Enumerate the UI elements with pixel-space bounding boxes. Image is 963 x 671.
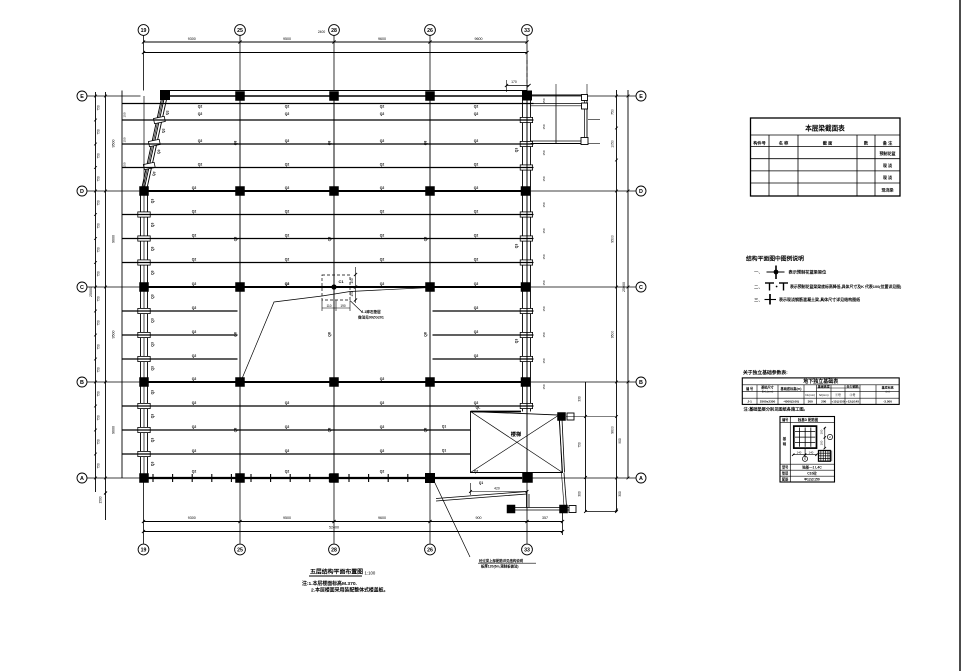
svg-text:Q2: Q2 — [474, 104, 479, 108]
svg-text:Q8: Q8 — [424, 428, 428, 433]
svg-text:②号: ②号 — [850, 392, 856, 397]
svg-text:一、: 一、 — [754, 270, 763, 275]
svg-text:150: 150 — [542, 254, 546, 259]
svg-text:预制花篮: 预制花篮 — [880, 150, 896, 156]
svg-text:Q2: Q2 — [380, 449, 385, 453]
svg-text:33: 33 — [524, 547, 530, 553]
svg-text:9600: 9600 — [475, 37, 483, 41]
svg-text:Q3: Q3 — [515, 244, 519, 249]
svg-text:Q3: Q3 — [151, 342, 155, 347]
svg-text:100: 100 — [820, 429, 824, 434]
svg-text:750: 750 — [578, 442, 582, 448]
svg-text:Q2: Q2 — [192, 401, 197, 405]
svg-text:140: 140 — [797, 451, 802, 455]
svg-text:19: 19 — [141, 547, 147, 553]
svg-text:Q8: Q8 — [424, 332, 428, 337]
svg-text:编号: 编号 — [782, 417, 789, 422]
svg-text:Q2: Q2 — [285, 470, 290, 474]
svg-text:Q3: Q3 — [151, 390, 155, 395]
svg-text:1500: 1500 — [99, 496, 103, 503]
svg-text:9600: 9600 — [112, 426, 116, 434]
svg-text:Q8: Q8 — [424, 237, 428, 242]
svg-text:750: 750 — [97, 296, 101, 302]
svg-text:Q2: Q2 — [285, 234, 290, 238]
svg-text:750: 750 — [97, 415, 101, 421]
svg-text:Q2: Q2 — [474, 234, 479, 238]
svg-text:关于独立基础参数表:: 关于独立基础参数表: — [743, 369, 788, 376]
svg-text:Q2: Q2 — [285, 112, 290, 116]
svg-text:①号: ①号 — [835, 392, 841, 397]
svg-text:截 面: 截 面 — [823, 140, 833, 147]
svg-text:Q2: Q2 — [285, 449, 290, 453]
svg-text:表示预制花篮梁梁底标高降低,具体尺寸及K 代表100(位置详: 表示预制花篮梁梁底标高降低,具体尺寸及K 代表100(位置详见图) — [789, 284, 902, 289]
svg-text:J-1碎石垫层: J-1碎石垫层 — [361, 309, 381, 314]
svg-text:150: 150 — [542, 384, 546, 389]
svg-text:750: 750 — [97, 271, 101, 277]
svg-text:Q8: Q8 — [328, 141, 332, 146]
svg-text:750: 750 — [97, 129, 101, 135]
svg-text:Q2: Q2 — [380, 282, 385, 286]
svg-text:+12@150: +12@150 — [831, 400, 844, 404]
svg-text:C10砼: C10砼 — [807, 471, 817, 476]
svg-text:750: 750 — [97, 391, 101, 397]
svg-text:D: D — [80, 189, 84, 195]
svg-text:150: 150 — [542, 124, 546, 129]
svg-text:9500: 9500 — [112, 331, 116, 339]
svg-text:357: 357 — [542, 516, 548, 520]
svg-text:9500: 9500 — [112, 140, 116, 148]
svg-text:配筋: 配筋 — [782, 477, 789, 482]
svg-text:28: 28 — [331, 28, 337, 34]
svg-text:Q2: Q2 — [198, 139, 203, 143]
svg-text:Q2: Q2 — [192, 234, 197, 238]
svg-text:Q2: Q2 — [474, 306, 479, 310]
svg-text:170: 170 — [511, 80, 517, 84]
svg-text:9500: 9500 — [611, 331, 615, 339]
svg-text:Q2: Q2 — [380, 210, 385, 214]
svg-text:330: 330 — [578, 396, 582, 402]
svg-text:300: 300 — [618, 491, 622, 497]
svg-text:750: 750 — [97, 344, 101, 350]
svg-text:25000: 25000 — [89, 287, 93, 297]
svg-text:基础高度: 基础高度 — [817, 384, 831, 389]
svg-text:900: 900 — [618, 438, 622, 444]
svg-text:750: 750 — [97, 105, 101, 111]
svg-text:9500: 9500 — [283, 37, 291, 41]
svg-text:Q2: Q2 — [474, 186, 479, 190]
svg-text:Q2: Q2 — [285, 425, 290, 429]
svg-text:Q2: Q2 — [380, 104, 385, 108]
svg-text:Q2: Q2 — [380, 139, 385, 143]
svg-text:Q2: Q2 — [192, 258, 197, 262]
svg-text:Q2: Q2 — [192, 377, 197, 381]
svg-text:Q3: Q3 — [157, 149, 162, 154]
svg-text:1050: 1050 — [611, 140, 615, 148]
svg-text:构件号: 构件号 — [753, 140, 766, 147]
svg-text:表示现浇钢筋混凝土梁,具体尺寸详见结构图纸: 表示现浇钢筋混凝土梁,具体尺寸详见结构图纸 — [778, 296, 860, 302]
svg-text:Q2: Q2 — [198, 163, 203, 167]
svg-text:150: 150 — [542, 228, 546, 233]
svg-text:1:100: 1:100 — [365, 571, 376, 576]
svg-text:Q2: Q2 — [198, 104, 203, 108]
svg-text:-4500(3.00): -4500(3.00) — [783, 400, 799, 404]
svg-text:楼梯: 楼梯 — [511, 430, 522, 438]
svg-text:Q2: Q2 — [474, 330, 479, 334]
svg-text:Q3: Q3 — [151, 438, 155, 443]
svg-text:Q2: Q2 — [285, 258, 290, 262]
svg-text:19: 19 — [141, 28, 147, 34]
svg-text:750: 750 — [97, 367, 101, 373]
svg-text:Q3: Q3 — [151, 462, 155, 467]
svg-text:25: 25 — [237, 547, 243, 553]
svg-text:表示预制花篮梁梁位: 表示预制花篮梁梁位 — [789, 269, 828, 276]
svg-text:垫层: 垫层 — [782, 471, 789, 476]
svg-text:Q2: Q2 — [474, 354, 479, 358]
svg-text:B: B — [80, 380, 84, 386]
svg-text:900: 900 — [476, 516, 482, 520]
svg-text:Q2: Q2 — [285, 139, 290, 143]
svg-text:9600: 9600 — [378, 516, 386, 520]
svg-text:Q2: Q2 — [285, 163, 290, 167]
svg-text:Q2: Q2 — [192, 210, 197, 214]
svg-text:Φ12@150: Φ12@150 — [804, 478, 820, 482]
svg-text:140: 140 — [809, 451, 814, 455]
svg-text:独基—1 L4C: 独基—1 L4C — [801, 465, 822, 470]
svg-text:Q8: Q8 — [328, 332, 332, 337]
svg-text:A: A — [639, 476, 643, 482]
svg-text:750: 750 — [97, 463, 101, 469]
svg-text:Q2: Q2 — [474, 139, 479, 143]
svg-text:150: 150 — [542, 306, 546, 311]
svg-text:名 称: 名 称 — [779, 140, 789, 147]
svg-text:300: 300 — [808, 400, 813, 404]
svg-text:150: 150 — [542, 280, 546, 285]
svg-text:Q8: Q8 — [234, 332, 238, 337]
svg-text:板厚120(6m,预制板做法): 板厚120(6m,预制板做法) — [481, 564, 519, 569]
svg-text:Q2: Q2 — [192, 306, 197, 310]
svg-text:Q8: Q8 — [424, 141, 428, 146]
svg-text:Q8: Q8 — [328, 428, 332, 433]
svg-text:9600: 9600 — [378, 37, 386, 41]
svg-text:750: 750 — [97, 247, 101, 253]
svg-text:做法见99ZG201: 做法见99ZG201 — [357, 315, 384, 320]
svg-text:9600: 9600 — [611, 426, 615, 434]
svg-text:C1: C1 — [338, 279, 344, 284]
svg-text:Q8: Q8 — [234, 237, 238, 242]
svg-text:420: 420 — [494, 487, 500, 491]
svg-text:Q2: Q2 — [285, 210, 290, 214]
svg-text:C: C — [639, 285, 643, 291]
svg-text:750: 750 — [97, 439, 101, 445]
svg-text:26: 26 — [427, 28, 433, 34]
svg-text:Q2: Q2 — [380, 425, 385, 429]
svg-text:150: 150 — [542, 176, 546, 181]
svg-text:Q3: Q3 — [151, 318, 155, 323]
svg-text:Q2: Q2 — [380, 258, 385, 262]
svg-text:Q3: Q3 — [151, 414, 155, 419]
svg-text:+12@145: +12@145 — [846, 400, 859, 404]
svg-text:28: 28 — [331, 547, 337, 553]
svg-text:33: 33 — [524, 28, 530, 34]
svg-text:结构平面图中图例说明: 结构平面图中图例说明 — [746, 255, 804, 263]
svg-text:E: E — [639, 94, 643, 100]
svg-text:独基D 配筋图: 独基D 配筋图 — [797, 417, 819, 422]
svg-text:Q1: Q1 — [442, 449, 446, 453]
svg-text:Q2: Q2 — [192, 354, 197, 358]
svg-text:110: 110 — [326, 304, 331, 308]
svg-text:25: 25 — [237, 28, 243, 34]
svg-text:Q1: Q1 — [442, 425, 446, 429]
svg-text:Q2: Q2 — [380, 234, 385, 238]
svg-text:Q2: Q2 — [285, 186, 290, 190]
svg-text:B×L(mm): B×L(mm) — [762, 390, 774, 394]
svg-text:Q2: Q2 — [380, 401, 385, 405]
svg-text:750: 750 — [97, 223, 101, 229]
svg-text:Q2: Q2 — [192, 282, 197, 286]
svg-text:B: B — [639, 380, 643, 386]
svg-text:Q3: Q3 — [151, 366, 155, 371]
svg-text:150: 150 — [542, 358, 546, 363]
svg-text:C: C — [80, 285, 84, 291]
svg-text:200: 200 — [821, 400, 826, 404]
svg-text:Q3: Q3 — [152, 171, 157, 176]
svg-text:Q2: Q2 — [474, 112, 479, 116]
svg-text:9500: 9500 — [611, 235, 615, 243]
svg-text:Q2: Q2 — [380, 186, 385, 190]
svg-text:Q3: Q3 — [515, 339, 519, 344]
svg-text:25000: 25000 — [622, 282, 626, 292]
svg-text:150: 150 — [350, 278, 354, 284]
svg-text:750: 750 — [97, 176, 101, 182]
svg-text:100: 100 — [820, 440, 824, 445]
svg-text:备 注: 备 注 — [883, 140, 893, 147]
svg-text:二、: 二、 — [754, 285, 763, 290]
svg-text:注:基础垫层分别见图纸各施工图。: 注:基础垫层分别见图纸各施工图。 — [744, 406, 808, 413]
svg-text:Q2: Q2 — [380, 470, 385, 474]
svg-text:750: 750 — [97, 153, 101, 159]
svg-text:现浇梁: 现浇梁 — [882, 187, 894, 193]
svg-text:26: 26 — [427, 547, 433, 553]
svg-text:Q2: Q2 — [380, 163, 385, 167]
svg-text:基: 基 — [782, 436, 787, 441]
svg-text:Q3: Q3 — [151, 246, 155, 251]
svg-text:E: E — [80, 94, 84, 100]
svg-text:(m): (m) — [885, 390, 889, 394]
svg-text:h2(mm): h2(mm) — [819, 393, 829, 397]
svg-text:9300: 9300 — [188, 516, 196, 520]
svg-text:QL: QL — [476, 406, 481, 410]
svg-text:Q8: Q8 — [328, 237, 332, 242]
svg-text:Q2: Q2 — [285, 282, 290, 286]
svg-text:9300: 9300 — [188, 37, 196, 41]
svg-text:Q2: Q2 — [192, 470, 197, 474]
svg-text:D: D — [639, 189, 643, 195]
svg-text:现 浇: 现 浇 — [883, 162, 892, 168]
svg-text:Q8: Q8 — [234, 141, 238, 146]
svg-text:Q3: Q3 — [161, 128, 166, 133]
svg-text:Q2: Q2 — [474, 163, 479, 167]
svg-text:A: A — [80, 476, 84, 482]
svg-text:Q2: Q2 — [474, 210, 479, 214]
svg-text:2.本层楼面采用装配整体式楼盖板。: 2.本层楼面采用装配整体式楼盖板。 — [311, 586, 388, 593]
svg-text:-3.500: -3.500 — [883, 400, 892, 404]
svg-text:Q3: Q3 — [151, 199, 155, 204]
svg-text:Q1: Q1 — [479, 481, 483, 485]
svg-text:Q3: Q3 — [151, 223, 155, 228]
svg-text:现 浇: 现 浇 — [883, 174, 892, 180]
svg-text:Q2: Q2 — [474, 258, 479, 262]
svg-text:750: 750 — [611, 109, 615, 115]
svg-text:本层梁截面表: 本层梁截面表 — [804, 124, 845, 133]
svg-text:Q2: Q2 — [198, 112, 203, 116]
svg-text:9500: 9500 — [283, 516, 291, 520]
svg-text:Q2: Q2 — [380, 112, 385, 116]
svg-text:Q2: Q2 — [192, 449, 197, 453]
svg-text:h1(mm): h1(mm) — [805, 393, 815, 397]
svg-text:150: 150 — [123, 112, 127, 117]
svg-text:2400: 2400 — [318, 30, 326, 34]
svg-text:9600: 9600 — [112, 235, 116, 243]
svg-text:150: 150 — [542, 98, 546, 103]
svg-text:基础底标高(m): 基础底标高(m) — [780, 386, 802, 391]
svg-text:Q2: Q2 — [285, 401, 290, 405]
svg-text:Q8: Q8 — [234, 428, 238, 433]
svg-text:编 号: 编 号 — [746, 386, 754, 391]
svg-text:2500x2300: 2500x2300 — [760, 400, 776, 404]
svg-text:注:1.本层楼面标高M.370.: 注:1.本层楼面标高M.370. — [302, 580, 358, 587]
svg-text:Q3: Q3 — [151, 294, 155, 299]
svg-text:J-1: J-1 — [747, 400, 752, 404]
svg-text:190: 190 — [340, 304, 346, 308]
svg-text:Q3: Q3 — [515, 148, 519, 153]
svg-text:Q2: Q2 — [380, 377, 385, 381]
svg-text:Q2: Q2 — [192, 186, 197, 190]
svg-text:150: 150 — [542, 332, 546, 337]
svg-text:300: 300 — [578, 491, 582, 497]
svg-text:750: 750 — [97, 200, 101, 206]
svg-text:150: 150 — [542, 202, 546, 207]
svg-text:型号: 型号 — [782, 465, 789, 470]
svg-text:砼过梁上部配筋详见结构说明: 砼过梁上部配筋详见结构说明 — [479, 558, 524, 563]
svg-text:750: 750 — [97, 320, 101, 326]
svg-text:Q3: Q3 — [165, 110, 170, 115]
svg-text:Q2: Q2 — [285, 104, 290, 108]
svg-text:五层结构平面布置图: 五层结构平面布置图 — [310, 568, 363, 576]
svg-text:Q2: Q2 — [192, 330, 197, 334]
svg-text:Q2: Q2 — [474, 282, 479, 286]
svg-text:150: 150 — [123, 137, 127, 142]
svg-text:Q3: Q3 — [151, 270, 155, 275]
svg-text:受力钢筋: 受力钢筋 — [846, 384, 858, 389]
svg-text:Q2: Q2 — [192, 425, 197, 429]
svg-text:150: 150 — [542, 150, 546, 155]
svg-text:三、: 三、 — [754, 298, 763, 303]
svg-text:150: 150 — [350, 291, 354, 297]
svg-text:150: 150 — [123, 162, 127, 167]
